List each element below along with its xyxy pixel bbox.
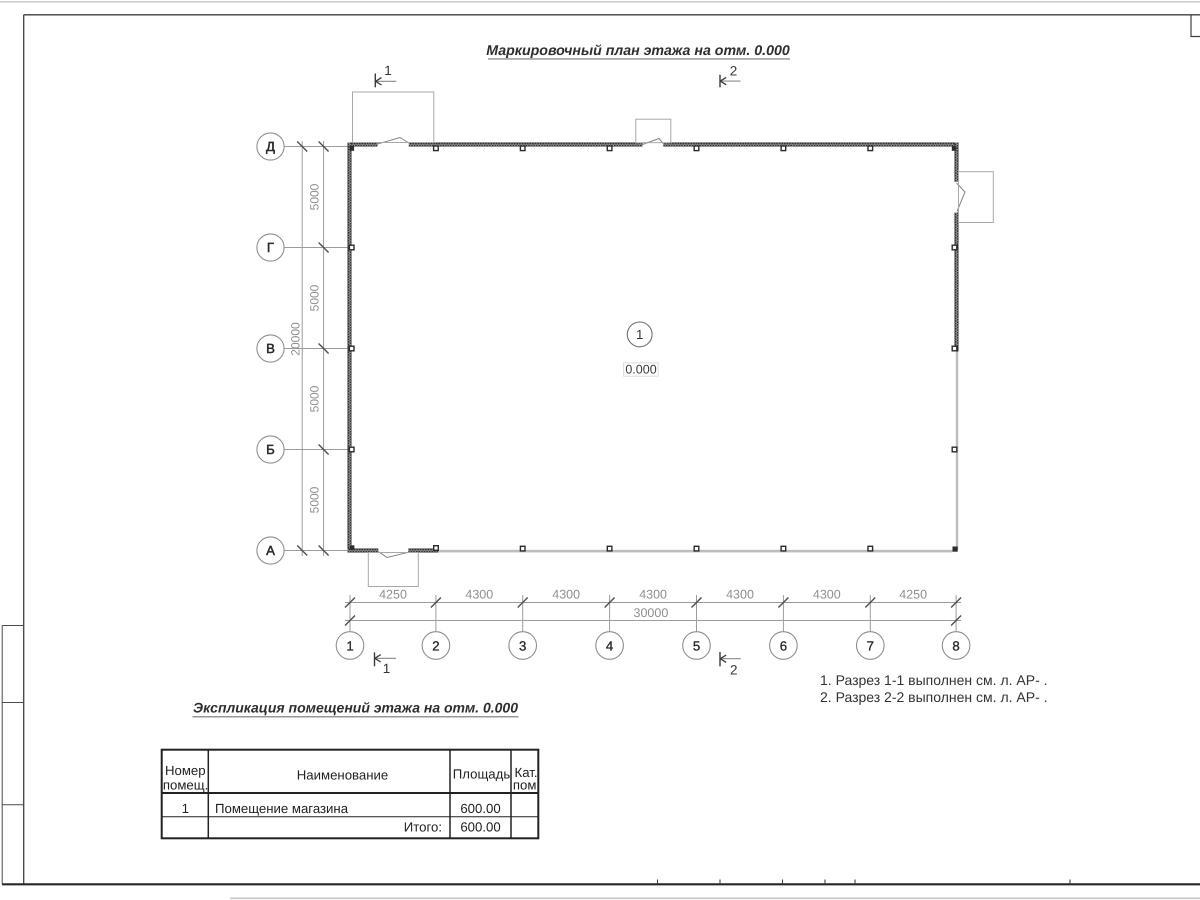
- svg-text:600.00: 600.00: [460, 819, 500, 834]
- svg-text:1: 1: [384, 63, 392, 78]
- svg-text:6: 6: [780, 639, 787, 654]
- svg-text:4300: 4300: [813, 588, 841, 602]
- svg-text:Наименование: Наименование: [297, 768, 388, 783]
- svg-text:1: 1: [182, 801, 189, 816]
- svg-text:пом.: пом.: [513, 778, 540, 793]
- svg-text:4300: 4300: [552, 588, 580, 602]
- svg-text:4250: 4250: [899, 588, 927, 602]
- svg-text:2: 2: [730, 64, 738, 79]
- svg-text:7: 7: [867, 639, 874, 654]
- svg-text:1. Разрез 1-1 выполнен см. л.: 1. Разрез 1-1 выполнен см. л. АР- .: [820, 672, 1048, 688]
- svg-text:3: 3: [519, 639, 526, 654]
- svg-text:4250: 4250: [379, 588, 407, 602]
- svg-text:2: 2: [730, 663, 738, 678]
- svg-text:В: В: [266, 341, 275, 356]
- svg-text:8: 8: [952, 639, 959, 654]
- svg-text:4300: 4300: [726, 588, 754, 602]
- svg-text:Б: Б: [266, 442, 275, 457]
- svg-text:20000: 20000: [288, 322, 302, 356]
- svg-text:4300: 4300: [465, 588, 493, 602]
- svg-text:А: А: [266, 543, 275, 558]
- svg-text:Площадь: Площадь: [453, 767, 511, 782]
- svg-text:1: 1: [346, 639, 353, 654]
- svg-text:600.00: 600.00: [460, 801, 500, 816]
- svg-text:2. Разрез 2-2 выполнен см. л.: 2. Разрез 2-2 выполнен см. л. АР- .: [820, 689, 1048, 705]
- svg-text:5: 5: [693, 639, 700, 654]
- svg-text:Д: Д: [266, 139, 275, 154]
- svg-text:Итого:: Итого:: [404, 819, 442, 834]
- svg-text:Номер: Номер: [165, 763, 206, 778]
- svg-text:1: 1: [383, 661, 391, 676]
- svg-text:Маркировочный план этажа на от: Маркировочный план этажа на отм. 0.000: [486, 43, 790, 59]
- svg-text:4: 4: [606, 639, 613, 654]
- svg-text:30000: 30000: [634, 606, 669, 620]
- svg-text:5000: 5000: [308, 486, 322, 513]
- svg-text:помещ.: помещ.: [163, 778, 208, 793]
- svg-text:0.000: 0.000: [625, 363, 656, 377]
- svg-text:2: 2: [432, 639, 439, 654]
- svg-text:5000: 5000: [308, 183, 322, 210]
- svg-text:Г: Г: [267, 240, 274, 255]
- svg-text:Экспликация помещений этажа на: Экспликация помещений этажа на отм. 0.00…: [193, 700, 518, 716]
- svg-text:4300: 4300: [639, 588, 667, 602]
- svg-text:1: 1: [636, 327, 643, 342]
- svg-text:Помещение магазина: Помещение магазина: [215, 801, 349, 816]
- svg-text:5000: 5000: [308, 385, 322, 412]
- svg-text:5000: 5000: [308, 284, 322, 311]
